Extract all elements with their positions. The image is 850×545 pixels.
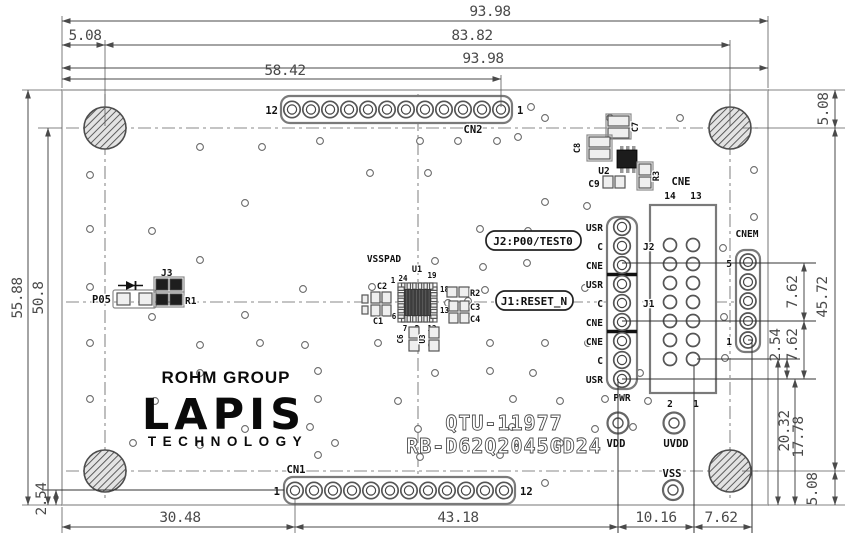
technology-text: TECHNOLOGY (148, 434, 308, 449)
dim-overall-width-mid: 93.98 (462, 51, 503, 67)
pin-hole (442, 486, 451, 495)
via (302, 342, 309, 349)
via (315, 368, 322, 375)
pin-hole (439, 105, 448, 114)
via (494, 138, 501, 145)
vss-label: VSS (663, 468, 682, 480)
pin-label-cne: CNE (586, 318, 603, 329)
via (197, 342, 204, 349)
via (242, 200, 249, 207)
cn2-pin1-label: 1 (517, 105, 523, 117)
c3-label: C3 (470, 303, 480, 313)
u1-pin6: 6 (392, 312, 397, 321)
c7-label: C7 (631, 122, 641, 132)
pin-hole (617, 355, 626, 364)
via (677, 115, 684, 122)
cnem-pin1-label: 1 (726, 337, 732, 348)
cn1-pin1-label: 1 (274, 486, 280, 498)
cn2-pin12-label: 12 (265, 105, 278, 117)
pin-label-cne: CNE (586, 261, 603, 272)
pin-hole (382, 105, 391, 114)
cne-pin13-label: 13 (690, 191, 702, 202)
via (542, 115, 549, 122)
pin-label-c: C (597, 299, 603, 310)
vdd-label: VDD (607, 438, 626, 450)
j2-label: J2 (643, 242, 654, 253)
pin-hole (617, 336, 626, 345)
via (395, 398, 402, 405)
uvdd-label: UVDD (663, 438, 688, 450)
u1-pin19: 19 (427, 271, 437, 280)
qfn-pad (413, 283, 416, 289)
pin-label-usr: USR (586, 223, 603, 234)
pin-hole (401, 105, 410, 114)
via (369, 284, 376, 291)
cne-hole (687, 296, 700, 309)
pin-hole (617, 260, 626, 269)
c9-label: C9 (588, 179, 600, 190)
pin-hole (423, 486, 432, 495)
via (315, 452, 322, 459)
mounting-hole (84, 450, 126, 492)
cnem-pin5-label: 5 (726, 259, 732, 270)
via (542, 199, 549, 206)
via (645, 398, 652, 405)
cne-label: CNE (672, 176, 691, 188)
cne-hole (687, 258, 700, 271)
via (87, 284, 94, 291)
cne-hole (664, 258, 677, 271)
qfn-pad (430, 283, 433, 289)
pin-hole (744, 297, 753, 306)
pin-hole (458, 105, 467, 114)
qfn-pad (418, 316, 421, 322)
dim-cn1-to-vdd: 43.18 (437, 510, 478, 526)
r3-label: R3 (652, 171, 662, 181)
cne-hole (664, 296, 677, 309)
qfn-pad (398, 309, 404, 312)
via (332, 440, 339, 447)
via (487, 368, 494, 375)
pin-hole (363, 105, 372, 114)
qfn-pad (424, 283, 427, 289)
via (87, 340, 94, 347)
via (482, 287, 489, 294)
via (317, 138, 324, 145)
via (375, 340, 382, 347)
cn1-label: CN1 (287, 464, 306, 476)
pin-label-usr: USR (586, 375, 603, 386)
via (751, 167, 758, 174)
pin-hole (306, 105, 315, 114)
pin-label-c: C (597, 242, 603, 253)
dim-cn1-pin1-x: 30.48 (159, 510, 200, 526)
via (584, 203, 591, 210)
dim-cnem-pitch-upper: 7.62 (785, 276, 801, 309)
dim-overall-height: 55.88 (10, 277, 26, 318)
via (721, 314, 728, 321)
cne-pin14-label: 14 (664, 191, 676, 202)
pin-hole (287, 105, 296, 114)
via (415, 426, 422, 433)
vsspad-label: VSSPAD (367, 254, 402, 265)
via (524, 260, 531, 267)
via (510, 396, 517, 403)
via (417, 138, 424, 145)
j1-label: J1 (643, 299, 655, 310)
p05-label: P05 (92, 294, 111, 306)
via (630, 424, 637, 431)
pin-hole (366, 486, 375, 495)
qfn-pad (431, 293, 437, 296)
via (477, 226, 484, 233)
dim-vdd-to-cne: 10.16 (635, 510, 676, 526)
c2-label: C2 (377, 282, 387, 292)
pin-hole (344, 105, 353, 114)
dim-cn2-pin1-x: 58.42 (264, 63, 305, 79)
dim-cne-to-cnem: 7.62 (705, 510, 738, 526)
dim-usr-to-bottom: 17.78 (791, 416, 807, 457)
via (87, 396, 94, 403)
via (515, 134, 522, 141)
dim-overall-width-top: 93.98 (469, 4, 510, 20)
qfn-pad (431, 304, 437, 307)
via (300, 286, 307, 293)
via (197, 257, 204, 264)
via (542, 340, 549, 347)
drawing-canvas: 12 1 CN2 1 12 CN1 CNE 14 13 2 1 CNEM 5 1… (0, 0, 850, 545)
cne-hole (687, 277, 700, 290)
via (487, 340, 494, 347)
qfn-pad (424, 316, 427, 322)
via (242, 312, 249, 319)
pin-label-usr: USR (586, 280, 603, 291)
cne-hole (664, 353, 677, 366)
via (528, 104, 535, 111)
dim-hole-col-height: 50.8 (31, 282, 47, 315)
u1-pin13: 13 (440, 306, 450, 315)
pin-hole (617, 241, 626, 250)
u1-pin24: 24 (398, 274, 408, 283)
c6-label: C6 (396, 334, 405, 344)
pin-label-cne: CNE (586, 337, 603, 348)
dim-hole-span-x: 83.82 (451, 28, 492, 44)
c1-label: C1 (373, 317, 383, 327)
qfn-pad (398, 304, 404, 307)
pin-hole (309, 486, 318, 495)
pin-hole (480, 486, 489, 495)
logo: ROHM GROUP LAPIS TECHNOLOGY (142, 368, 308, 449)
pin-hole (290, 486, 299, 495)
via (149, 228, 156, 235)
qfn-pad (398, 315, 404, 318)
qfn-pad (413, 316, 416, 322)
pin-hole (461, 486, 470, 495)
board-id-line2: RB-D62Q2045GD24 (406, 434, 602, 458)
via (367, 170, 374, 177)
via (425, 170, 432, 177)
via (149, 314, 156, 321)
pin-hole (617, 317, 626, 326)
via (315, 396, 322, 403)
cnem-label: CNEM (736, 229, 759, 240)
via (592, 426, 599, 433)
pin-hole (328, 486, 337, 495)
cn1-pin12-label: 12 (520, 486, 533, 498)
pin-hole (617, 222, 626, 231)
via (722, 355, 729, 362)
u2-label: U2 (598, 166, 609, 177)
u1-pin1: 1 (391, 276, 396, 285)
board-id-line1: QTU-11977 (445, 411, 562, 435)
dim-hole-top-offset: 5.08 (816, 93, 832, 126)
u1-ref: U1 (412, 265, 422, 275)
c4-label: C4 (470, 315, 480, 325)
via (602, 396, 609, 403)
pcb-dimension-drawing: 12 1 CN2 1 12 CN1 CNE 14 13 2 1 CNEM 5 1… (0, 0, 850, 545)
via (307, 424, 314, 431)
rohm-group-text: ROHM GROUP (162, 368, 291, 387)
pin-hole (617, 279, 626, 288)
pin-hole (325, 105, 334, 114)
pin-hole (404, 486, 413, 495)
pin-hole (744, 258, 753, 267)
pin-hole (499, 486, 508, 495)
via (480, 264, 487, 271)
cne-hole (664, 277, 677, 290)
via (87, 172, 94, 179)
via (455, 138, 462, 145)
r2-label: R2 (470, 289, 480, 299)
cne-hole (664, 334, 677, 347)
cne-hole (687, 239, 700, 252)
cne-hole (664, 239, 677, 252)
qfn-pad (431, 298, 437, 301)
via (259, 144, 266, 151)
pwr-label: PWR (613, 393, 630, 404)
cn2-label: CN2 (464, 124, 483, 136)
qfn-pad (398, 287, 404, 290)
cne-pin2-label: 2 (667, 399, 673, 410)
j1-callout: J1:RESET_N (501, 295, 567, 308)
via (751, 214, 758, 221)
via (87, 226, 94, 233)
dim-hole-left-offset: 5.08 (69, 28, 102, 44)
c8-label: C8 (573, 143, 583, 153)
connector-cne: CNE 14 13 2 1 (650, 176, 716, 410)
via (542, 480, 549, 487)
via (720, 245, 727, 252)
via (197, 144, 204, 151)
qfn-pad (407, 316, 410, 322)
pin-hole (420, 105, 429, 114)
dim-hole-span-y: 45.72 (815, 276, 831, 317)
via (257, 340, 264, 347)
via (530, 370, 537, 377)
dim-cne-usr-gap: 2.54 (768, 328, 784, 362)
qfn-pad (431, 315, 437, 318)
lapis-logo-text: LAPIS (142, 390, 306, 440)
dim-cn1-row-offset: 2.54 (34, 482, 50, 516)
pin-hole (744, 278, 753, 287)
j2-callout: J2:P00/TEST0 (493, 235, 572, 248)
dim-cnem-pitch-lower: 7.62 (785, 329, 801, 362)
via (432, 258, 439, 265)
pin-hole (477, 105, 486, 114)
qfn-pad (398, 298, 404, 301)
via (432, 370, 439, 377)
qfn-pad (398, 293, 404, 296)
qfn-pad (418, 283, 421, 289)
pin-hole (617, 298, 626, 307)
r1-label: R1 (185, 296, 197, 307)
via (557, 398, 564, 405)
u3-label: U3 (418, 334, 427, 344)
dim-hole-bottom-offset: 5.08 (805, 473, 821, 506)
qfn-pad (431, 309, 437, 312)
u1-pin7: 7 (403, 324, 408, 333)
pin-label-c: C (597, 356, 603, 367)
pin-hole (385, 486, 394, 495)
qfn-pad (407, 283, 410, 289)
pin-hole (347, 486, 356, 495)
via (130, 440, 137, 447)
cne-hole (687, 334, 700, 347)
